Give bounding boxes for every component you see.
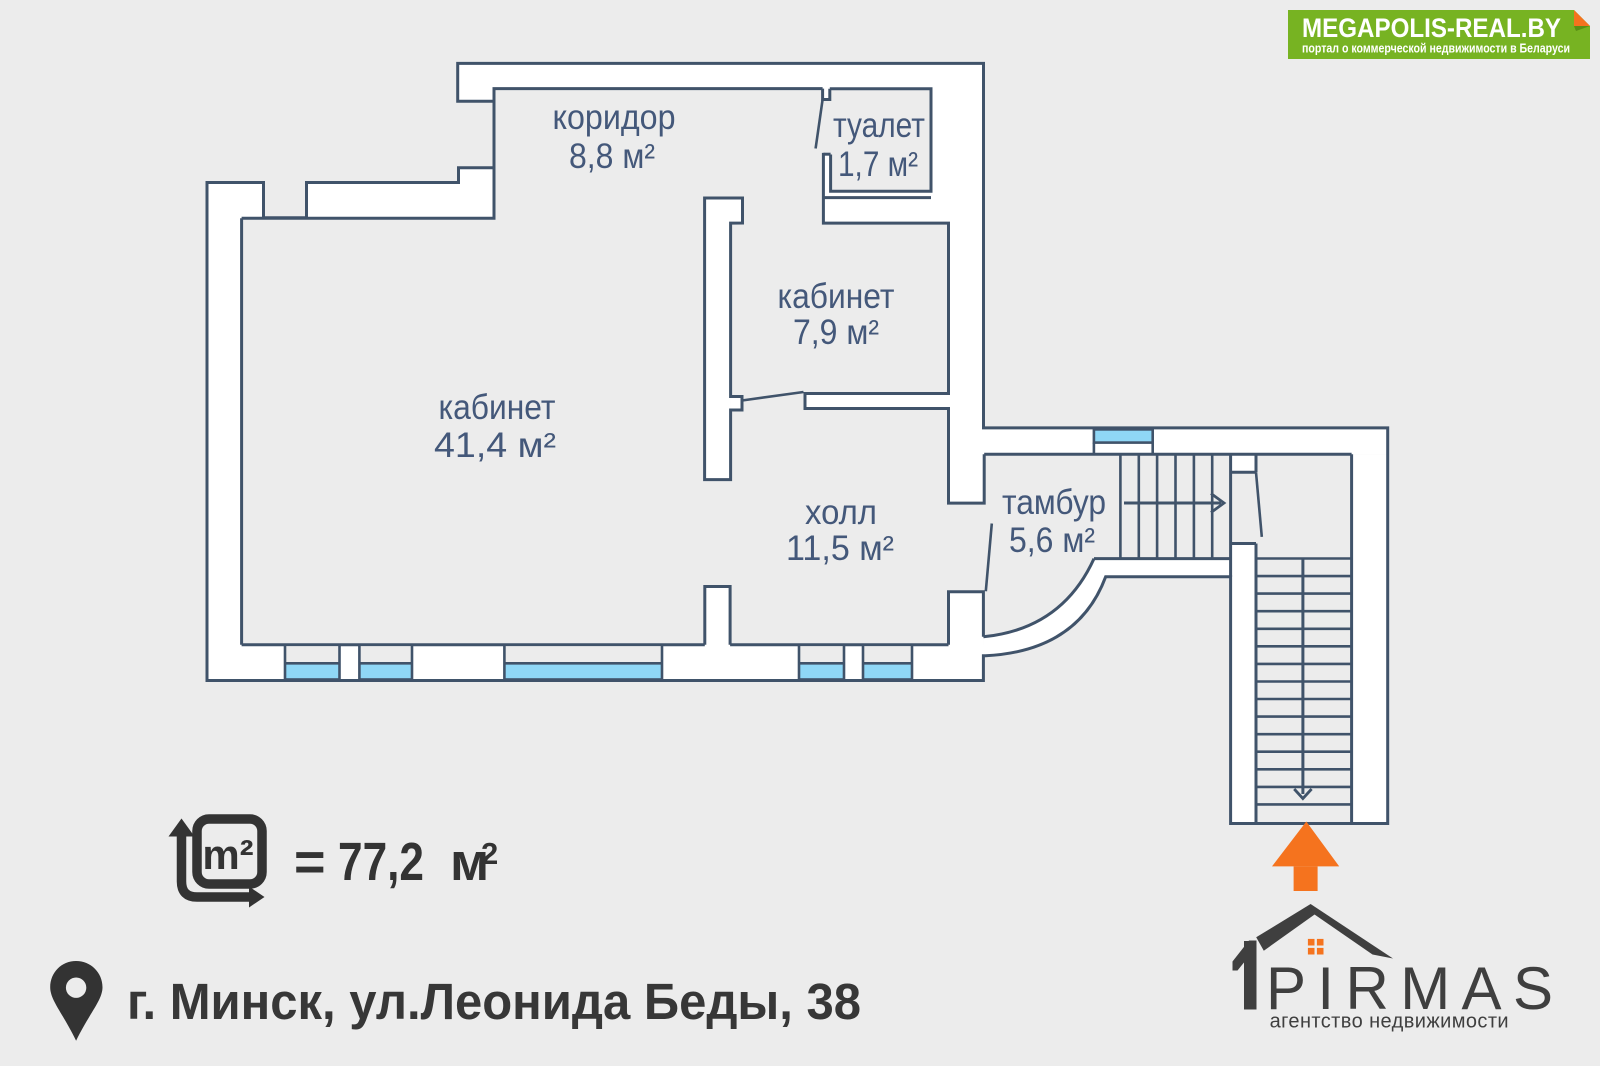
svg-text:кабинет: кабинет xyxy=(778,277,895,316)
svg-text:41,4 м²: 41,4 м² xyxy=(434,426,556,465)
svg-text:11,5 м²: 11,5 м² xyxy=(786,529,894,568)
svg-text:агентство недвижимости: агентство недвижимости xyxy=(1270,1011,1509,1033)
svg-text:портал о коммерческой недвижим: портал о коммерческой недвижимости в Бел… xyxy=(1302,42,1570,56)
svg-text:г. Минск, ул.Леонида Беды, 38: г. Минск, ул.Леонида Беды, 38 xyxy=(127,973,861,1030)
svg-text:=: = xyxy=(294,832,326,892)
svg-text:кабинет: кабинет xyxy=(439,388,556,427)
svg-text:8,8 м²: 8,8 м² xyxy=(569,137,655,176)
svg-text:m²: m² xyxy=(202,831,253,878)
svg-text:туалет: туалет xyxy=(833,106,925,145)
svg-text:тамбур: тамбур xyxy=(1002,483,1106,522)
svg-text:1,7 м²: 1,7 м² xyxy=(838,145,918,184)
svg-text:5,6 м²: 5,6 м² xyxy=(1009,521,1095,560)
svg-text:2: 2 xyxy=(481,836,498,871)
svg-text:MEGAPOLIS-REAL.BY: MEGAPOLIS-REAL.BY xyxy=(1302,13,1561,43)
svg-text:холл: холл xyxy=(805,493,877,532)
svg-text:коридор: коридор xyxy=(553,98,676,137)
svg-text:77,2: 77,2 xyxy=(338,832,424,892)
svg-text:7,9 м²: 7,9 м² xyxy=(793,313,879,352)
